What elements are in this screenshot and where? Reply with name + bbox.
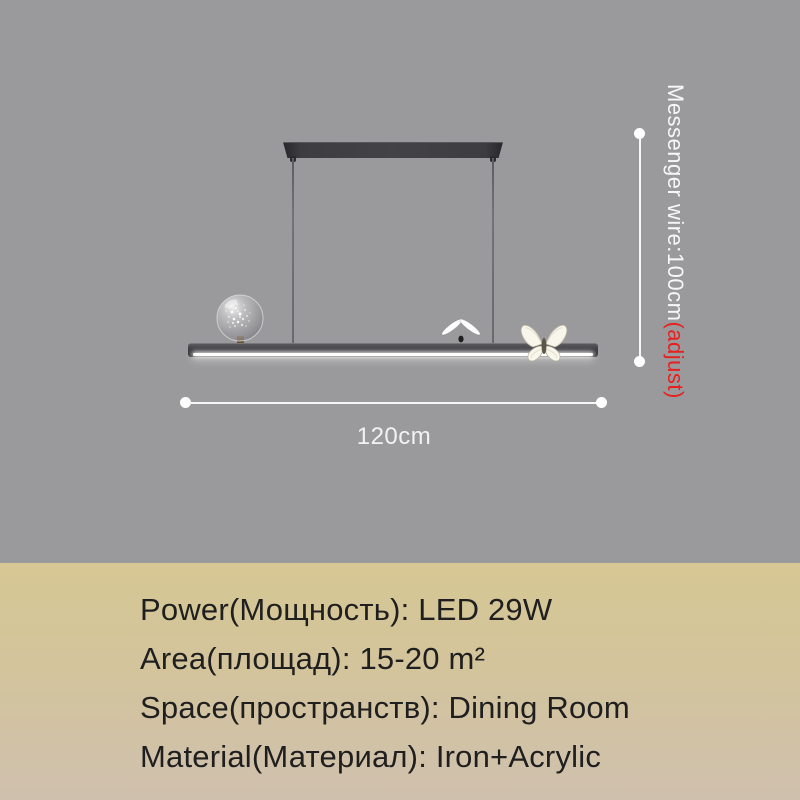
wire-length-label: Messenger wire:100cm(adjust) bbox=[662, 84, 688, 399]
lamp-scene: Messenger wire:100cm(adjust) 120cm bbox=[0, 0, 800, 563]
spec-space: Space(пространств): Dining Room bbox=[140, 683, 630, 732]
butterfly-spread-icon bbox=[519, 320, 569, 368]
spec-list: Power(Мощность): LED 29W Area(площад): 1… bbox=[140, 585, 630, 781]
wire-length-text: Messenger wire:100cm bbox=[663, 84, 688, 321]
spec-panel: Power(Мощность): LED 29W Area(площад): 1… bbox=[0, 563, 800, 800]
vertical-dimension-dot-bottom bbox=[634, 356, 645, 367]
ceiling-mount-bar bbox=[283, 142, 503, 158]
width-dimension-label: 120cm bbox=[294, 423, 494, 451]
vertical-dimension-line bbox=[639, 137, 641, 358]
wire-adjust-text: (adjust) bbox=[663, 321, 688, 398]
starry-globe-ornament bbox=[214, 292, 266, 344]
product-image: Messenger wire:100cm(adjust) 120cm Power… bbox=[0, 0, 800, 800]
spec-power: Power(Мощность): LED 29W bbox=[140, 585, 630, 634]
spec-material: Material(Материал): Iron+Acrylic bbox=[140, 732, 630, 781]
horizontal-dimension-dot-right bbox=[596, 397, 607, 408]
horizontal-dimension-line bbox=[189, 402, 599, 404]
suspension-wire-right bbox=[492, 158, 494, 344]
butterfly-wings-up-icon bbox=[441, 314, 481, 344]
spec-area: Area(площад): 15-20 m² bbox=[140, 634, 630, 683]
suspension-wire-left bbox=[292, 158, 294, 344]
